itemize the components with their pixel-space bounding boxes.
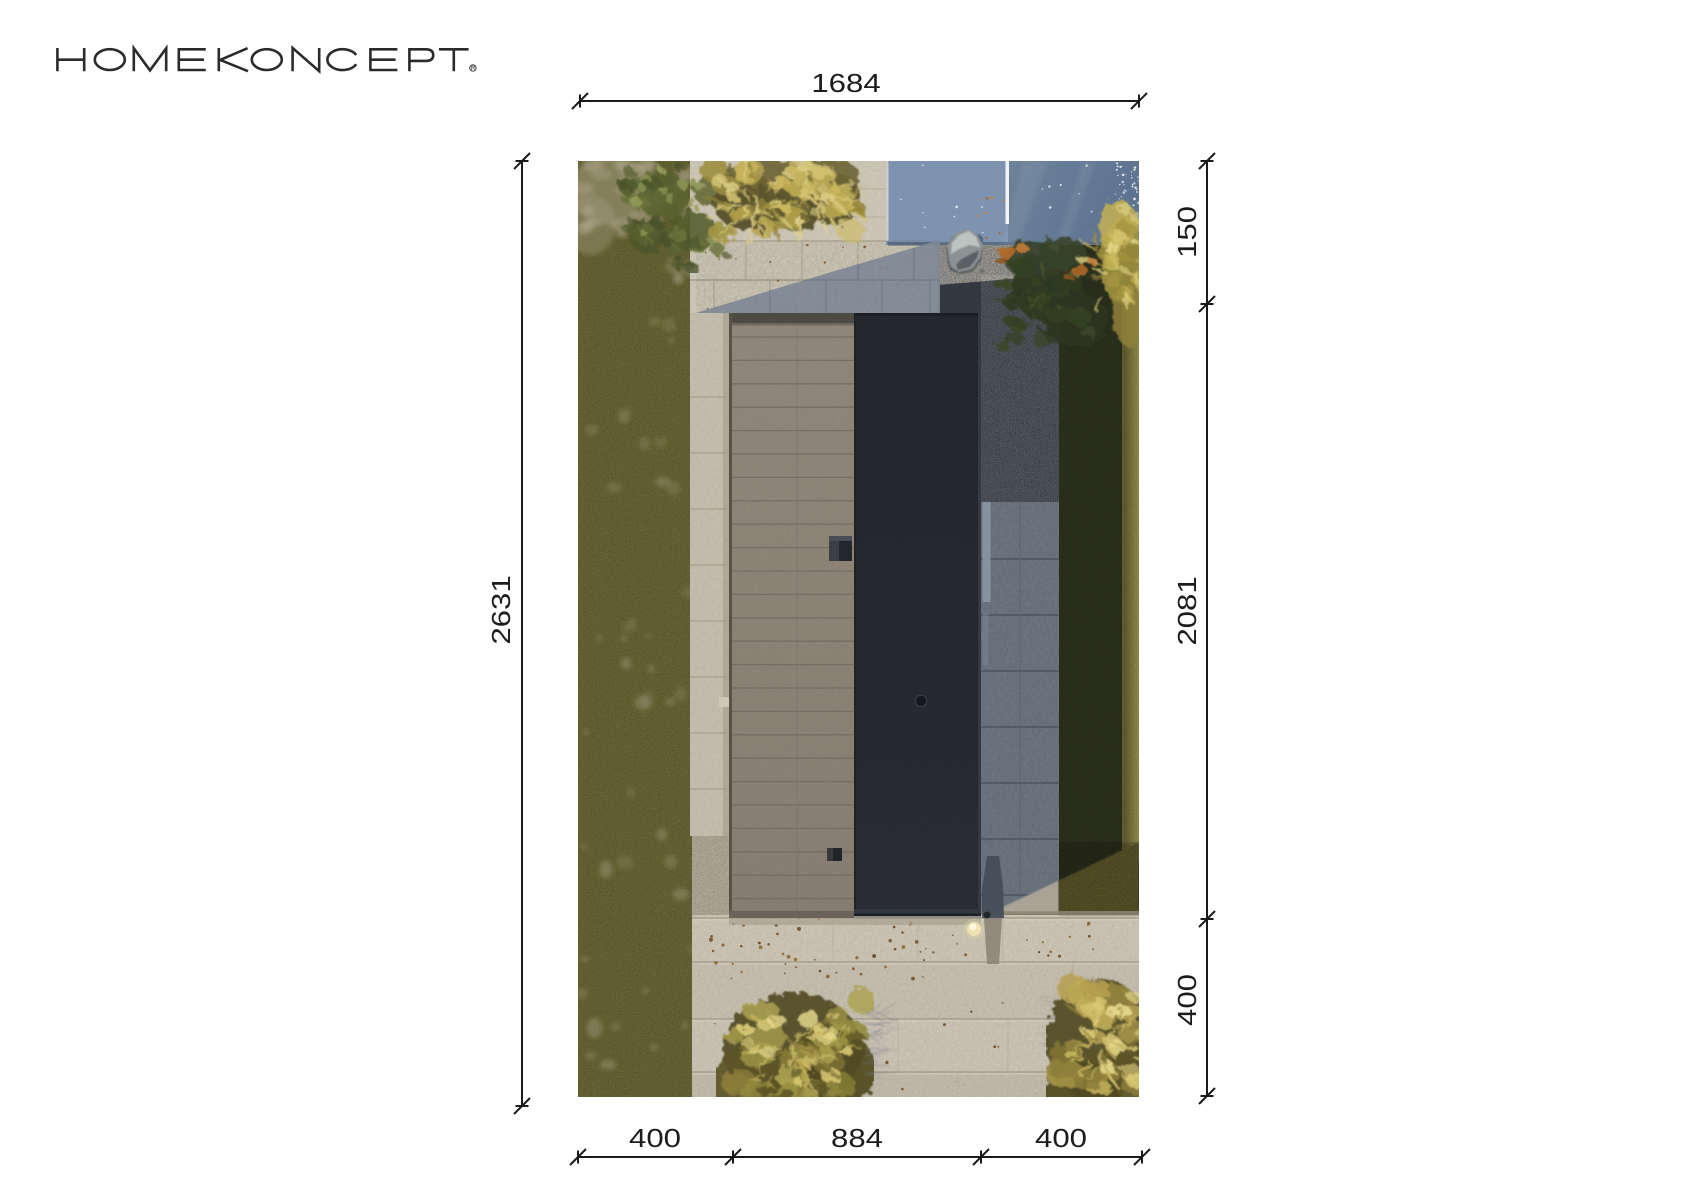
svg-text:400: 400 (629, 1124, 681, 1153)
svg-text:884: 884 (831, 1124, 883, 1153)
svg-text:150: 150 (1173, 206, 1202, 258)
svg-text:2081: 2081 (1173, 576, 1202, 645)
svg-text:1684: 1684 (811, 69, 880, 98)
svg-text:400: 400 (1035, 1124, 1087, 1153)
svg-text:400: 400 (1173, 974, 1202, 1026)
svg-text:2631: 2631 (487, 575, 516, 644)
